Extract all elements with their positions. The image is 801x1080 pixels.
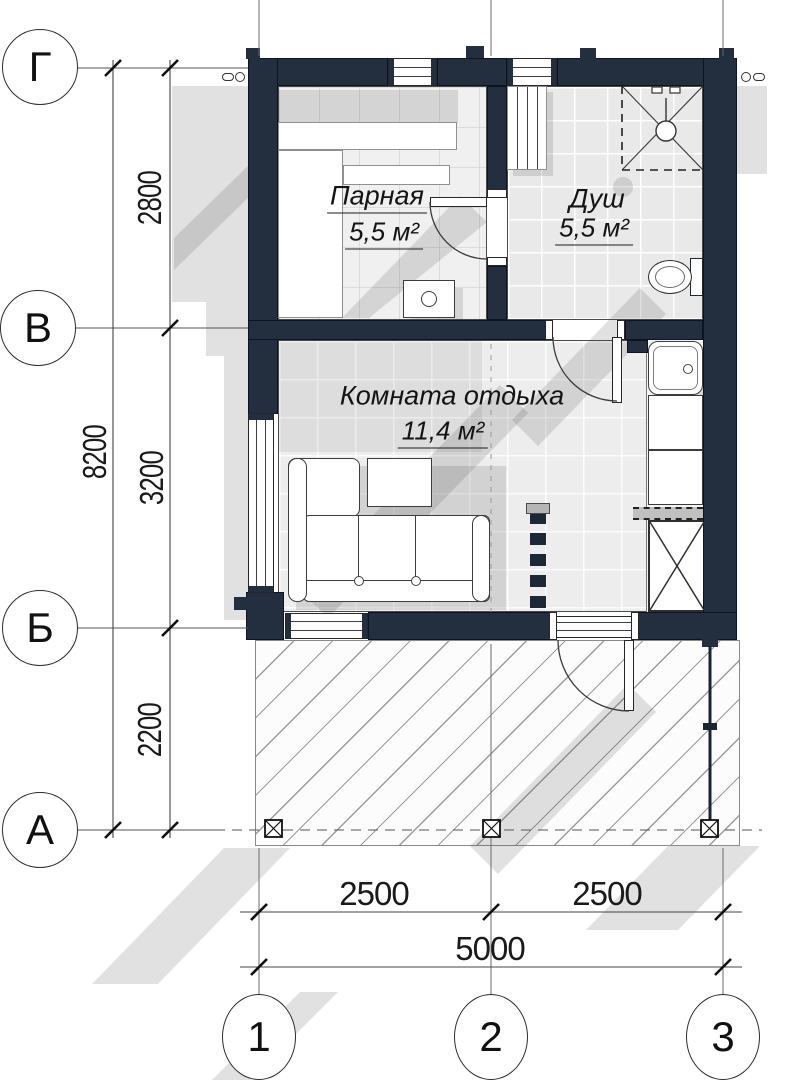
axis-col-1: 1 (222, 994, 296, 1080)
partition-cap (526, 503, 550, 514)
wall-left-upper (248, 58, 278, 340)
cabinet (648, 450, 703, 505)
sofa-armrest (472, 515, 490, 602)
room-label-parnaya: Парная (327, 181, 427, 214)
shadow (278, 90, 458, 123)
wall-bottom-right (632, 612, 737, 640)
window-icon (507, 58, 557, 86)
window-icon (248, 413, 274, 593)
sauna-heater-knob (421, 291, 437, 307)
cabinet (648, 395, 703, 450)
wall-divider-upper (487, 86, 507, 190)
log-tab (466, 46, 484, 58)
sink-icon (648, 341, 703, 395)
door-icon (612, 337, 622, 403)
opening-strip (633, 507, 703, 520)
dim-bottom-span-2: 2500 (572, 875, 641, 913)
terrace-beam-connector (702, 638, 718, 647)
bench-icon (278, 122, 457, 150)
stove-icon (648, 520, 706, 612)
wall-top-pier (437, 58, 507, 86)
room-label-restroom: Комната отдыха (340, 381, 564, 412)
window-icon (388, 58, 437, 86)
floor-plan-canvas: Парная 5,5 м² Душ 5,5 м² Комната отдыха … (0, 0, 801, 1080)
axis-row-v: В (0, 290, 76, 366)
axis-col-1-label: 1 (247, 1013, 270, 1061)
axis-row-a: А (2, 792, 78, 868)
sofa-icon (303, 515, 490, 602)
log-tab (246, 48, 260, 59)
bench-icon (507, 86, 547, 170)
log-tab (234, 597, 247, 610)
toilet-bowl-inner (655, 266, 685, 288)
room-area-shower: 5,5 м² (555, 213, 633, 246)
door-icon (624, 640, 634, 711)
axis-col-3-label: 3 (711, 1013, 734, 1061)
axis-col-3: 3 (686, 994, 760, 1080)
dim-bottom-span-1: 2500 (339, 875, 408, 913)
bench-icon (278, 150, 343, 318)
door-jamb (631, 612, 639, 640)
axis-col-2-label: 2 (479, 1013, 502, 1061)
room-area-parnaya: 5,5 м² (345, 217, 423, 250)
axis-row-b: Б (2, 590, 78, 666)
room-area-restroom: 11,4 м² (398, 416, 488, 449)
shadow (737, 86, 767, 174)
shadow (172, 86, 206, 302)
pipe-icon (235, 72, 245, 82)
axis-row-v-label: В (24, 304, 52, 352)
wall-stub (627, 340, 648, 353)
axis-row-a-label: А (26, 806, 54, 854)
log-tab (719, 48, 734, 59)
door-jamb (487, 257, 507, 266)
pipe-icon (741, 72, 751, 82)
table-icon (367, 458, 432, 507)
log-tab (580, 48, 596, 59)
dim-left-span-2: 3200 (133, 451, 171, 505)
door-jamb (549, 612, 557, 640)
dim-bottom-total: 5000 (455, 930, 524, 968)
wall-bottom-corner-left (246, 592, 284, 640)
shadow (206, 86, 250, 620)
door-jamb (487, 189, 507, 198)
wall-divider-lower (487, 266, 507, 320)
axis-row-g-label: Г (29, 43, 52, 91)
axis-row-b-label: Б (26, 604, 54, 652)
sofa-armrest (288, 458, 307, 602)
dim-left-span-3: 2200 (131, 703, 169, 757)
dashed-partition (530, 512, 546, 616)
dim-left-span-1: 2800 (131, 171, 169, 225)
shadow (92, 848, 290, 984)
room-label-shower: Душ (569, 184, 624, 215)
wall-bottom-mid (368, 612, 556, 640)
dim-left-total: 8200 (76, 425, 114, 479)
axis-col-2: 2 (454, 994, 528, 1080)
terrace (255, 640, 740, 846)
window-icon (285, 613, 368, 639)
door-jamb (545, 320, 553, 340)
wall-left-mid (248, 338, 278, 414)
axis-row-g: Г (2, 29, 78, 105)
pipe-icon (753, 73, 765, 81)
entry-threshold (556, 616, 632, 638)
pipe-icon (222, 73, 234, 81)
wall-mid-horizontal-right (625, 320, 703, 340)
wall-right (703, 58, 737, 640)
wall-mid-horizontal (248, 320, 552, 340)
door-icon (430, 197, 487, 207)
